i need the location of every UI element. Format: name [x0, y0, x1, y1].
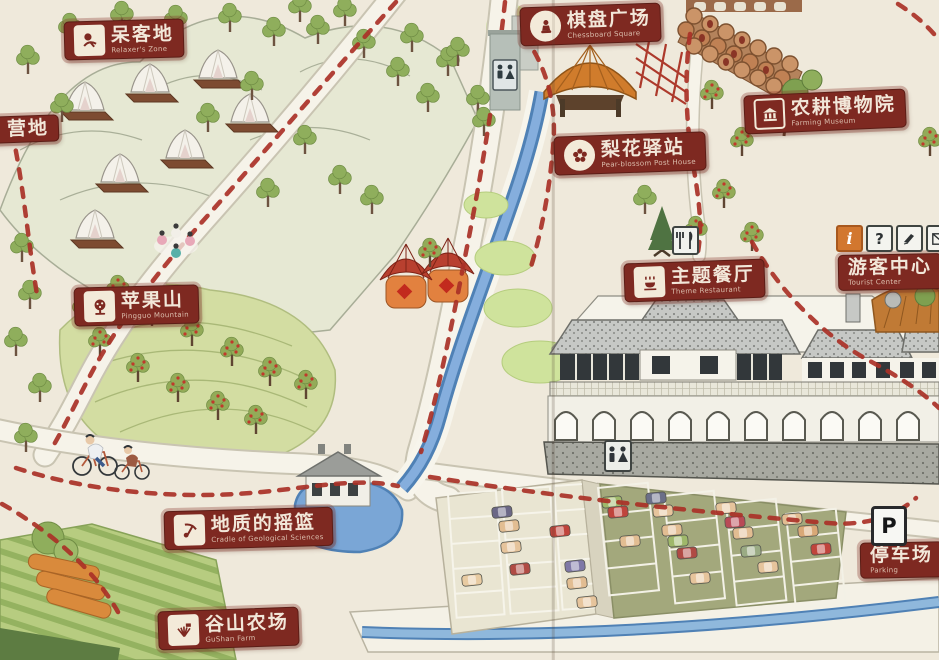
label-geological-cradle: 地质的摇篮 Cradle of Geological Sciences — [164, 507, 334, 550]
label-en: Parking — [870, 566, 933, 574]
label-en: Cradle of Geological Sciences — [211, 534, 324, 544]
label-relaxer-zone: 呆客地 Relaxer's Zone — [64, 18, 185, 60]
car — [646, 492, 667, 505]
car — [690, 572, 711, 585]
label-en: Theme Restaurant — [671, 285, 755, 295]
car — [677, 547, 698, 560]
tourist-center-services: i ? — [836, 225, 939, 252]
pickaxe-icon — [174, 514, 206, 546]
pen-icon — [896, 225, 923, 252]
label-zh: 棋盘广场 — [567, 8, 652, 30]
car — [566, 576, 587, 589]
restroom-icon — [605, 441, 631, 471]
label-tourist-center: 游客中心 Tourist Center — [838, 253, 939, 291]
parking-letter: P — [881, 514, 896, 538]
label-zh: 苹果山 — [121, 290, 189, 311]
car — [491, 505, 512, 518]
car — [461, 573, 482, 586]
restaurant-sign — [673, 227, 698, 254]
info-letter: i — [846, 229, 852, 248]
label-pear-blossom-post: 梨花驿站 Pear-blossom Post House — [553, 131, 706, 175]
label-zh: 营地 — [7, 119, 50, 139]
car — [725, 516, 746, 529]
bowl-icon — [633, 266, 665, 298]
question-icon: ? — [866, 225, 893, 252]
label-zh: 主题餐厅 — [671, 264, 756, 286]
label-en: Pingguo Mountain — [121, 311, 189, 320]
restroom-pillar — [488, 30, 522, 110]
car — [576, 595, 597, 608]
barn-icon — [167, 614, 199, 646]
pine-tree — [648, 206, 676, 250]
label-gushan-farm: 谷山农场 GuShan Farm — [157, 607, 299, 651]
label-en: GuShan Farm — [205, 633, 289, 643]
label-zh: 谷山农场 — [205, 612, 290, 634]
car — [498, 519, 519, 532]
flower-icon — [563, 139, 595, 171]
label-pingguo-mountain: 苹果山 Pingguo Mountain — [74, 284, 200, 326]
car — [741, 545, 762, 558]
museum-icon — [753, 98, 785, 130]
label-en: Chessboard Square — [567, 29, 651, 39]
car — [620, 535, 641, 548]
car — [758, 561, 779, 574]
label-chessboard-square: 棋盘广场 Chessboard Square — [519, 3, 661, 47]
label-zh: 游客中心 — [848, 257, 932, 277]
person-icon — [74, 25, 106, 57]
restroom-icon — [493, 60, 517, 90]
map-photo: 呆客地 Relaxer's Zone 营地 棋盘广场 Chessboard Sq… — [0, 0, 939, 660]
trail — [898, 4, 939, 40]
label-en: Relaxer's Zone — [111, 45, 174, 54]
label-en: Pear-blossom Post House — [601, 158, 696, 168]
car — [811, 543, 832, 556]
label-parking: 停车场 Parking — [860, 541, 939, 578]
car — [608, 506, 629, 519]
map-fold-shade — [552, 0, 555, 660]
info-icon: i — [836, 225, 863, 252]
building-restroom-sign — [605, 441, 631, 471]
chess-icon — [529, 10, 561, 42]
red-lattice-fence — [636, 36, 686, 104]
car — [564, 559, 585, 572]
label-zh: 停车场 — [870, 545, 933, 565]
car — [733, 527, 754, 540]
car — [798, 525, 819, 538]
car — [500, 540, 521, 553]
parking-lot-left — [436, 480, 605, 634]
car — [668, 535, 689, 548]
label-farming-museum: 农耕博物院 Farming Museum — [743, 88, 907, 134]
mail-icon — [926, 225, 939, 252]
parking-sign: P — [871, 506, 907, 546]
label-campsite: 营地 — [0, 114, 59, 144]
apple-tree-icon — [84, 291, 116, 323]
label-en: Tourist Center — [848, 278, 932, 286]
car — [662, 524, 683, 537]
car — [509, 562, 530, 575]
fork-knife-icon — [673, 227, 698, 254]
label-zh: 农耕博物院 — [790, 94, 896, 118]
theme-restaurant-building — [544, 286, 939, 484]
label-zh: 梨花驿站 — [601, 137, 696, 159]
question-mark: ? — [875, 230, 884, 248]
label-zh: 呆客地 — [111, 24, 174, 45]
label-theme-restaurant: 主题餐厅 Theme Restaurant — [623, 259, 765, 303]
label-zh: 地质的摇篮 — [211, 513, 324, 535]
